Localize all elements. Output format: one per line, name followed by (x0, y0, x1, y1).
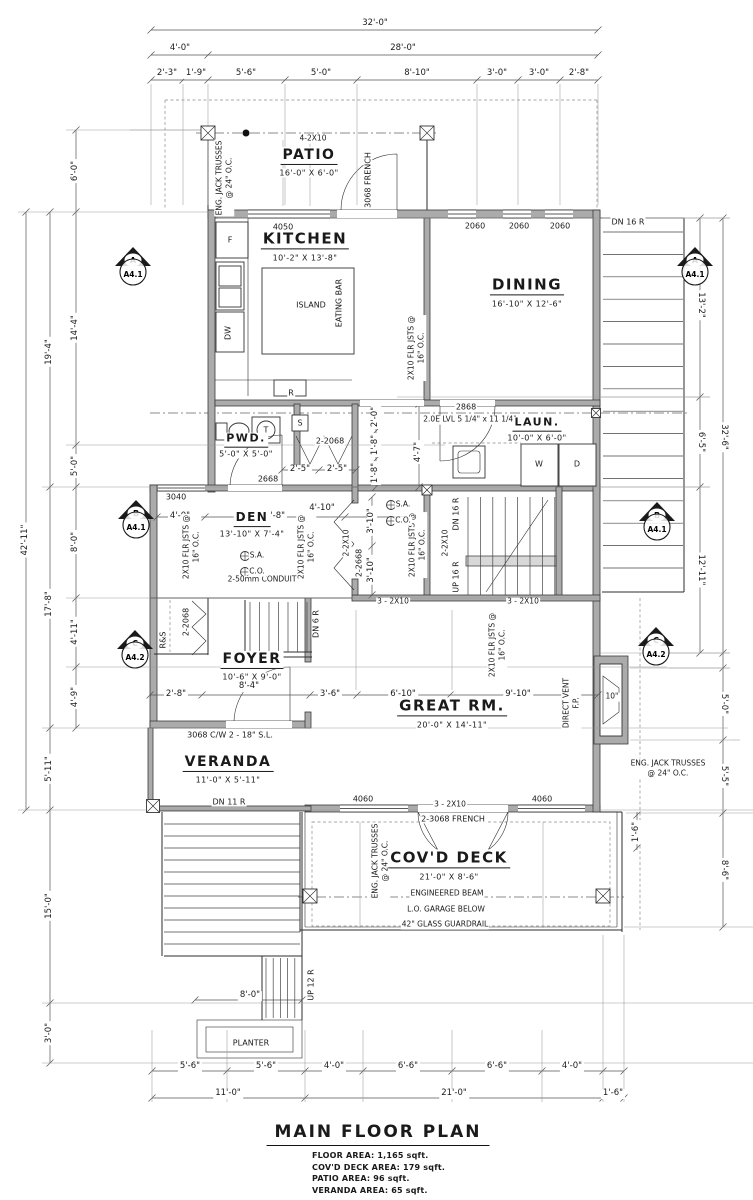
note-label: 2.0E LVL 5 1/4" x 11 1/4" (422, 416, 517, 425)
dimension-label: 3'-0" (527, 69, 551, 79)
note-label: ENGINEERED BEAM (409, 890, 484, 899)
room-label-laundry: LAUN. (512, 417, 561, 432)
dimension-label: 1'-9" (184, 69, 208, 79)
dimension-label: 1'-6" (632, 820, 642, 844)
dimension-label: 4'-0" (560, 1062, 584, 1072)
dimension-label: 6'-5" (695, 430, 705, 454)
room-label-dining: DINING (490, 276, 564, 295)
dimension-label: 5'-6" (178, 1062, 202, 1072)
note-label: DIRECT VENT F.P. (561, 677, 581, 729)
tag-label: 3068 FRENCH (363, 151, 372, 209)
room-label-great-room: GREAT RM. (397, 697, 507, 716)
tag-label: 4060 (531, 794, 553, 803)
area-line: COV'D DECK AREA: 179 sqft. (312, 1162, 445, 1174)
room-dims-patio: 16'-0" X 6'-0" (278, 168, 339, 177)
dimension-label: 5'-11" (45, 754, 55, 784)
floor-plan-sheet: 32'-0"4'-0"28'-0"2'-3"1'-9"5'-6"5'-0"8'-… (0, 0, 753, 1200)
room-dims-veranda: 11'-0" X 5'-11" (195, 775, 262, 784)
note-label: 4-2X10 (299, 135, 328, 144)
dimension-label: 11'-0" (213, 1089, 243, 1099)
dimension-label: 42'-11" (21, 523, 31, 558)
door-opening (228, 485, 282, 491)
tag-label: 2-3068 FRENCH (420, 814, 486, 823)
dimension-label: 3'-6" (318, 690, 342, 700)
dimension-label: 5'-0" (718, 692, 728, 716)
note-label: 2X10 FLR JSTS @ 16" O.C. (181, 514, 201, 580)
note-label: 42" GLASS GUARDRAIL (401, 921, 489, 930)
room-dims-laundry: 10'-0" X 6'-0" (506, 433, 567, 442)
dimension-label: 13'-2" (695, 290, 705, 320)
tag-label: DN 16 R (451, 497, 460, 532)
room-label-patio: PATIO (281, 147, 338, 165)
dimension-label: 9'-10" (503, 690, 533, 700)
dimension-label: 28'-0" (388, 44, 418, 54)
dimension-label: 4'-0" (322, 1062, 346, 1072)
room-label-den: DEN (234, 511, 271, 527)
dimension-label: 2'-8" (567, 69, 591, 79)
area-summary: FLOOR AREA: 1,165 sqft.COV'D DECK AREA: … (312, 1150, 445, 1196)
dimension-label: 3'-10" (367, 555, 377, 585)
tag-label: W (534, 459, 544, 468)
note-label: 3 - 2X10 (376, 598, 410, 607)
dimension-label: 8'-6" (718, 858, 728, 882)
dimension-label: 15'-0" (45, 891, 55, 921)
room-label-covd-deck: COV'D DECK (388, 849, 510, 868)
dimension-label: 19'-4" (45, 337, 55, 367)
dimension-label: 4'-9" (71, 685, 81, 709)
note-label: 2-50mm CONDUIT (227, 576, 298, 585)
note-label: 10" (605, 693, 620, 702)
dimension-label: 32'-6" (718, 422, 728, 452)
dimension-label: 2'-0" (371, 405, 381, 429)
tag-label: EATING BAR (334, 278, 343, 328)
svg-text:A4.1: A4.1 (685, 270, 704, 279)
dimension-label: 5'-6" (234, 69, 258, 79)
note-label: 3 - 2X10 (506, 598, 540, 607)
room-label-veranda: VERANDA (183, 754, 274, 772)
dimension-label: 3'-0" (485, 69, 509, 79)
dimension-label: 17'-8" (45, 589, 55, 619)
beam-point (243, 130, 250, 137)
note-label: 3 - 2X10 (433, 801, 467, 810)
room-label-kitchen: KITCHEN (261, 230, 349, 249)
note-label: ENG. JACK TRUSSES @ 24" O.C. (370, 823, 390, 900)
drawing-title: MAIN FLOOR PLAN (267, 1122, 490, 1146)
dimension-label: 4'-11" (71, 617, 81, 647)
dimension-label: 8'-4" (237, 682, 261, 692)
dimension-label: 6'-6" (396, 1062, 420, 1072)
tag-label: F (227, 235, 234, 244)
dimension-label: 14'-4" (71, 313, 81, 343)
room-dims-kitchen: 10'-2" X 13'-8" (272, 253, 339, 262)
note-label: C.O. (248, 568, 266, 577)
room-label-foyer: FOYER (221, 651, 284, 669)
tag-label: DN 6 R (311, 609, 320, 639)
note-label: S.A. (395, 501, 412, 510)
dimension-label: 4'-7" (414, 440, 424, 464)
dimension-label: 1'-6" (601, 1089, 625, 1099)
note-label: 2X10 FLR JSTS @ 16" O.C. (296, 514, 316, 580)
room-dims-great-room: 20'-0" X 14'-11" (416, 720, 488, 729)
dimension-label: 21'-0" (439, 1089, 469, 1099)
doors (192, 154, 508, 858)
tag-label: 2868 (455, 402, 477, 411)
svg-text:A4.1: A4.1 (123, 270, 142, 279)
svg-text:A4.2: A4.2 (646, 650, 665, 659)
tag-label: ISLAND (295, 300, 327, 309)
room-dims-foyer: 10'-6" X 9'-0" (221, 672, 282, 681)
dimension-label: 1'-8" (371, 433, 381, 457)
area-line: FLOOR AREA: 1,165 sqft. (312, 1150, 445, 1162)
dimension-label: 5'-0" (71, 454, 81, 478)
tag-label: 2668 (257, 474, 279, 483)
dimension-label: 32'-0" (360, 19, 390, 29)
dimension-label: 8'-0" (238, 991, 262, 1001)
tag-label: R (287, 388, 295, 397)
tag-label: UP 12 R (306, 968, 315, 1002)
tag-label: PLANTER (232, 1038, 270, 1047)
dimension-label: 6'-0" (71, 159, 81, 183)
room-dims-den: 13'-10" X 7'-4" (219, 529, 286, 538)
tag-label: 3040 (165, 492, 187, 501)
tag-label: UP 16 R (451, 560, 460, 594)
note-label: ENG. JACK TRUSSES @ 24" O.C. (214, 140, 234, 217)
tag-label: DN 16 R (611, 217, 646, 226)
dimension-label: 2'-5" (288, 465, 312, 475)
room-dims-dining: 16'-10" X 12'-6" (491, 299, 563, 308)
tag-label: 2060 (549, 221, 571, 230)
tag-label: 2-2668 (354, 548, 363, 578)
note-label: L.O. GARAGE BELOW (406, 906, 486, 915)
dimension-label: 12'-11" (695, 553, 705, 588)
note-label: 2-2X10 (343, 529, 352, 558)
dimension-label: 5'-5" (718, 764, 728, 788)
tag-label: 2-2068 (181, 607, 190, 637)
room-dims-powder: 5'-0" X 5'-0" (218, 449, 274, 458)
tag-label: 2060 (464, 221, 486, 230)
tag-label: 4060 (352, 794, 374, 803)
svg-text:A4.1: A4.1 (126, 523, 145, 532)
svg-text:A4.2: A4.2 (125, 653, 144, 662)
dimension-label: 2'-8" (164, 690, 188, 700)
dimension-label: 8'-0" (71, 530, 81, 554)
tag-label: DN 11 R (212, 797, 247, 806)
dimension-label: 4'-0" (168, 44, 192, 54)
door-opening (337, 210, 397, 218)
dimension-label: 1'-8" (371, 461, 381, 485)
dimension-label: 8'-10" (402, 69, 432, 79)
door-opening (360, 400, 424, 406)
tag-label: 2060 (508, 221, 530, 230)
note-label: C.O. (394, 517, 412, 526)
note-label: 2-2X10 (442, 529, 451, 558)
note-label: S.A. (249, 552, 266, 561)
dimension-label: 3'-0" (45, 1021, 55, 1045)
dimension-label: 3'-10" (367, 506, 377, 536)
area-line: VERANDA AREA: 65 sqft. (312, 1185, 445, 1197)
dimension-label: 6'-6" (485, 1062, 509, 1072)
note-label: 2X10 FLR JSTS @ 16" O.C. (487, 612, 507, 678)
dimension-label: 2'-5" (325, 465, 349, 475)
note-label: 2X10 FLR JSTS @ 16" O.C. (406, 315, 426, 381)
tag-label: S (296, 418, 303, 427)
tag-label: R&S (158, 631, 167, 650)
door-opening (226, 721, 292, 728)
tag-label: 3068 C/W 2 - 18" S.L. (186, 730, 274, 739)
tag-label: D (573, 459, 581, 468)
tag-label: 2-2068 (315, 436, 345, 445)
tag-label: DW (223, 325, 232, 341)
dimension-label: 2'-3" (155, 69, 179, 79)
room-label-powder: PWD. (224, 433, 268, 448)
dimension-label: 5'-0" (309, 69, 333, 79)
note-label: ENG. JACK TRUSSES @ 24" O.C. (630, 758, 707, 778)
area-line: PATIO AREA: 96 sqft. (312, 1173, 445, 1185)
dimension-label: 5'-6" (254, 1062, 278, 1072)
room-dims-covd-deck: 21'-0" X 8'-6" (418, 872, 479, 881)
dimension-label: 4'-10" (307, 504, 337, 514)
svg-text:A4.1: A4.1 (647, 525, 666, 534)
